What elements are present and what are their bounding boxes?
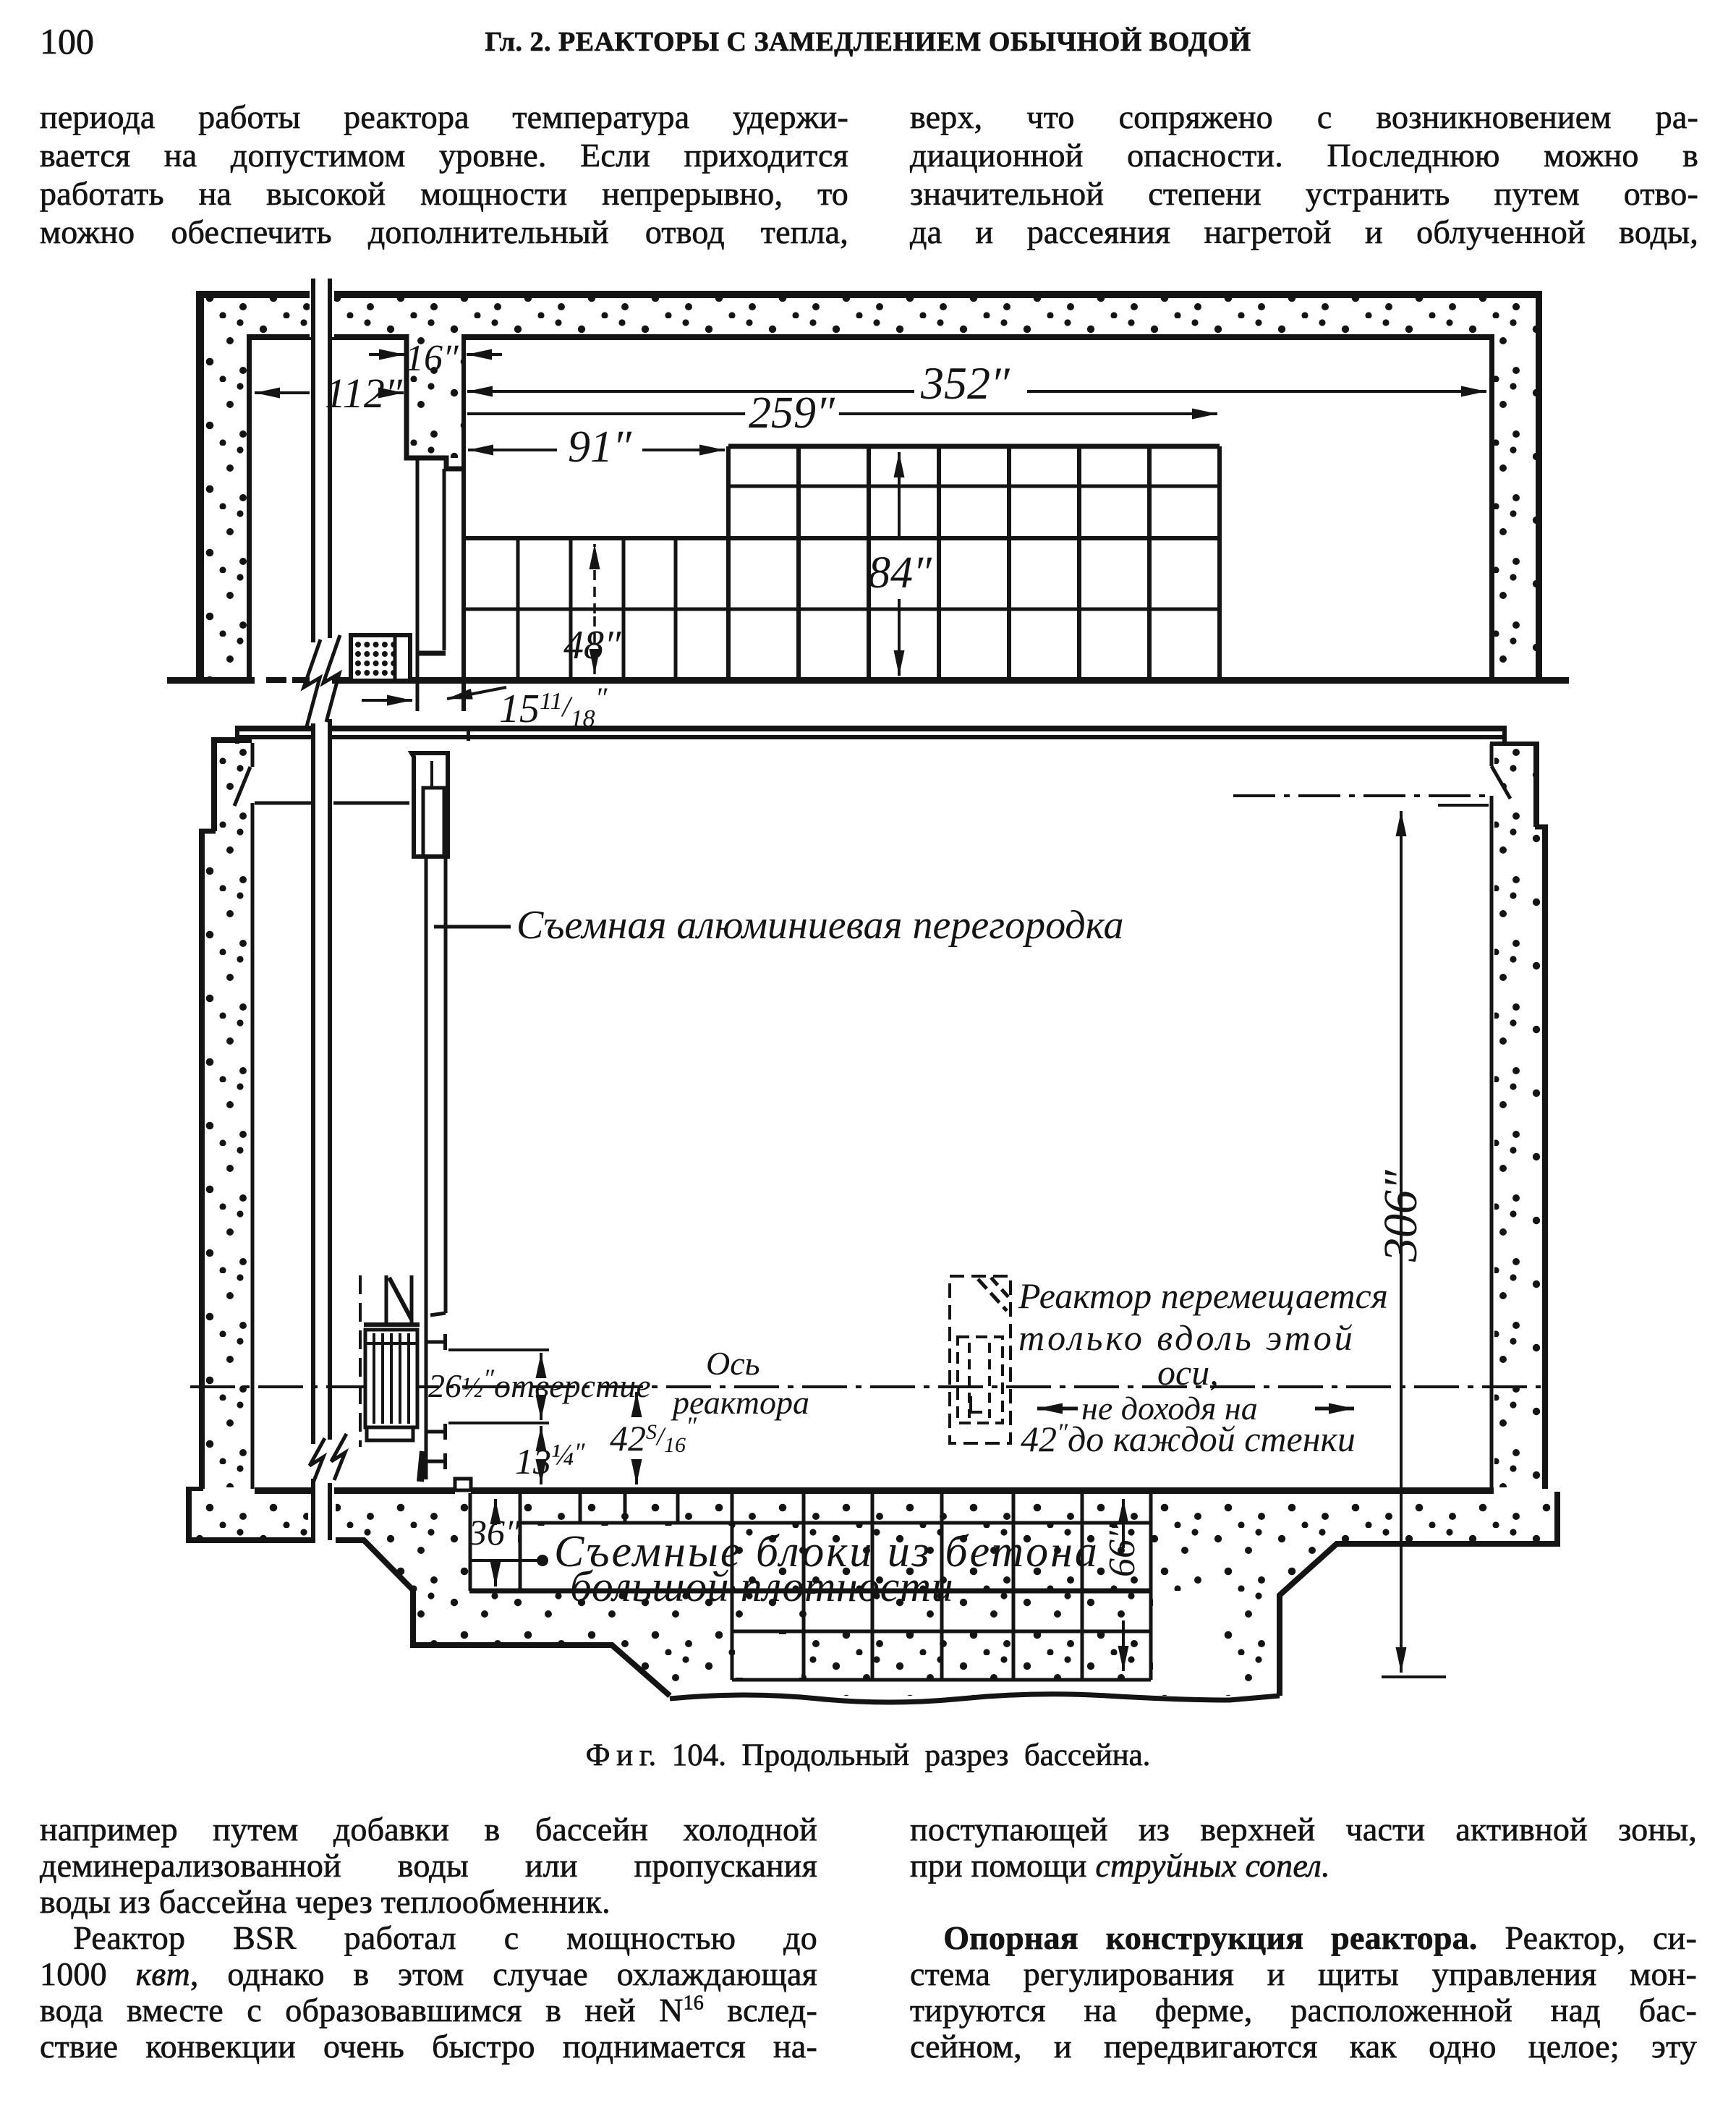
svg-text:36″: 36″: [468, 1512, 521, 1552]
svg-text:26½″отверстие: 26½″отверстие: [428, 1364, 651, 1404]
svg-text:реактора: реактора: [671, 1384, 809, 1421]
svg-text:84″: 84″: [868, 548, 932, 598]
svg-text:91″: 91″: [568, 422, 632, 472]
svg-text:1511/18″: 1511/18″: [499, 681, 608, 732]
svg-text:Реактор перемещается: Реактор перемещается: [1018, 1275, 1388, 1316]
svg-text:306″: 306″: [1374, 1169, 1427, 1262]
svg-text:Съемная алюминиевая перегоро: Съемная алюминиевая перегородка: [516, 903, 1123, 948]
svg-text:42″до каждой стенки: 42″до каждой стенки: [1021, 1418, 1356, 1459]
svg-text:большой плотности: большой плотности: [570, 1563, 953, 1610]
svg-text:16″: 16″: [405, 338, 459, 379]
svg-text:48″: 48″: [563, 623, 621, 668]
svg-text:13¼″: 13¼″: [515, 1437, 586, 1482]
svg-text:Ось: Ось: [706, 1345, 760, 1382]
svg-text:259″: 259″: [749, 388, 835, 438]
svg-text:352″: 352″: [920, 357, 1010, 409]
svg-text:оси,: оси,: [1157, 1352, 1219, 1393]
svg-text:66″: 66″: [1102, 1523, 1143, 1577]
svg-text:112″: 112″: [325, 370, 403, 417]
